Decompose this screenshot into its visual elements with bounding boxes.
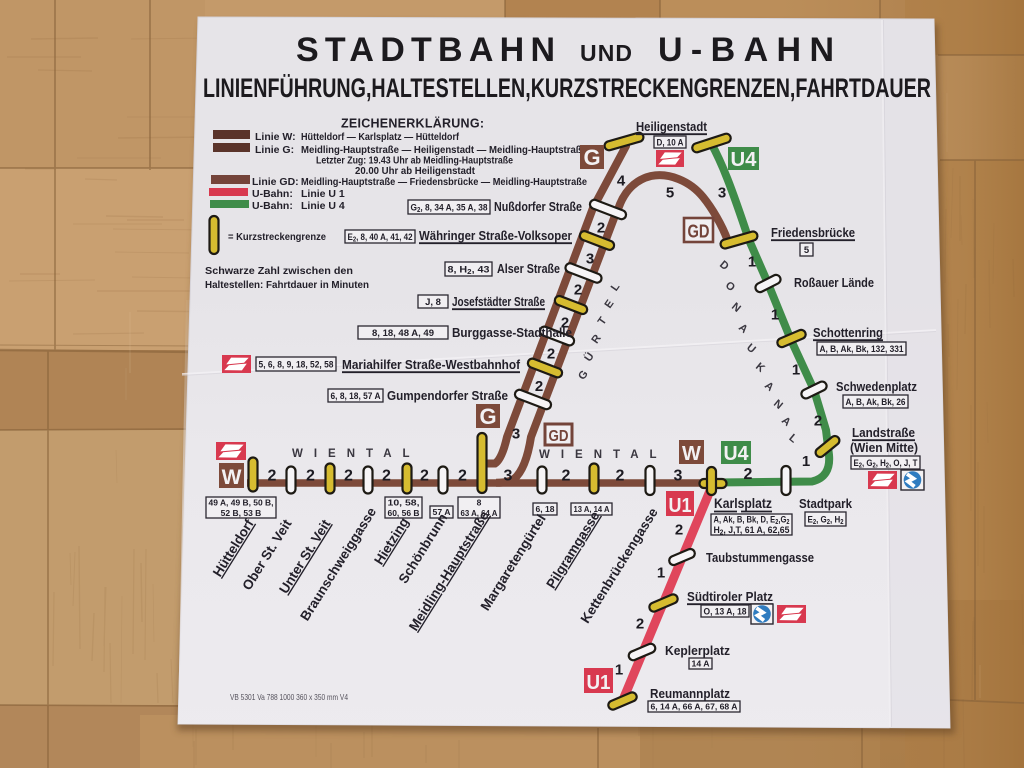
svg-text:2: 2 [535,378,543,395]
svg-text:60, 56 B: 60, 56 B [388,508,420,518]
svg-text:2: 2 [562,468,571,485]
svg-text:(Wien Mitte): (Wien Mitte) [850,440,918,455]
svg-text:2: 2 [675,522,683,539]
svg-text:Burggasse-Stadthalle: Burggasse-Stadthalle [452,325,572,340]
svg-text:A, B, Ak, Bk, 26: A, B, Ak, Bk, 26 [846,397,906,408]
svg-text:3: 3 [512,426,520,443]
svg-text:Meidling-Hauptstraße — Frieden: Meidling-Hauptstraße — Friedensbrücke — … [301,176,587,188]
svg-text:Schottenring: Schottenring [813,325,883,340]
svg-text:2: 2 [344,468,353,485]
svg-text:1: 1 [802,453,810,470]
svg-text:Gumpendorfer Straße: Gumpendorfer Straße [387,388,508,403]
svg-text:Alser Straße: Alser Straße [497,261,560,276]
svg-text:2: 2 [636,616,644,633]
svg-text:Roßauer Lände: Roßauer Lände [794,275,874,290]
svg-text:2: 2 [458,468,467,485]
svg-text:E2, 8, 40 A, 41, 42: E2, 8, 40 A, 41, 42 [348,232,413,244]
svg-text:Linie U 1: Linie U 1 [301,188,345,200]
svg-text:Währinger Straße-Volksoper: Währinger Straße-Volksoper [419,228,572,243]
svg-text:GD: GD [549,428,569,445]
svg-text:49 A, 49 B, 50 B,: 49 A, 49 B, 50 B, [209,497,274,507]
svg-text:O, 13 A, 18: O, 13 A, 18 [704,606,747,617]
svg-text:8: 8 [477,497,482,507]
svg-text:6, 8, 18, 57 A: 6, 8, 18, 57 A [331,391,381,402]
svg-text:2: 2 [382,468,391,485]
svg-text:U-Bahn:: U-Bahn: [252,200,293,212]
svg-text:Keplerplatz: Keplerplatz [665,643,730,658]
svg-text:Heiligenstadt: Heiligenstadt [636,119,708,134]
svg-text:1: 1 [657,565,665,582]
svg-text:1: 1 [792,362,800,379]
svg-text:Mariahilfer Straße-Westbahnhof: Mariahilfer Straße-Westbahnhof [342,357,521,372]
svg-text:A, B, Ak, Bk, 132, 331: A, B, Ak, Bk, 132, 331 [820,344,905,355]
svg-text:Linie W:: Linie W: [255,131,296,143]
svg-text:Linie GD:: Linie GD: [252,176,299,188]
svg-text:ZEICHENERKLÄRUNG:: ZEICHENERKLÄRUNG: [341,116,484,131]
svg-text:U-Bahn:: U-Bahn: [252,188,293,200]
svg-text:VB 5301 Va 788 1000 360 x 3: VB 5301 Va 788 1000 360 x 350 mm V4 [230,693,348,702]
svg-text:2: 2 [306,468,315,485]
svg-text:D, 10 A: D, 10 A [657,137,684,148]
svg-text:GD: GD [688,222,710,242]
svg-text:Linie U 4: Linie U 4 [301,200,345,212]
svg-text:5: 5 [804,245,810,256]
svg-text:3: 3 [674,468,683,485]
svg-text:U1: U1 [669,495,692,517]
svg-text:14 A: 14 A [692,659,710,669]
svg-text:3: 3 [504,468,513,485]
svg-text:Josefstädter Straße: Josefstädter Straße [452,294,545,309]
svg-text:Hütteldorf — Karlsplatz — Hütt: Hütteldorf — Karlsplatz — Hütteldorf [301,131,459,143]
svg-text:Südtiroler Platz: Südtiroler Platz [687,589,773,604]
svg-text:Landstraße: Landstraße [852,425,915,440]
svg-text:Friedensbrücke: Friedensbrücke [771,225,855,240]
svg-text:G: G [583,145,600,170]
svg-text:6, 14 A, 66 A, 67, 68 A: 6, 14 A, 66 A, 67, 68 A [651,702,738,712]
svg-text:LINIENFÜHRUNG,HALTESTELLEN,KUR: LINIENFÜHRUNG,HALTESTELLEN,KURZSTRECKENG… [203,73,931,103]
svg-text:2: 2 [616,468,625,485]
svg-text:1: 1 [771,307,779,324]
svg-text:H2, J,T, 61 A, 62,65: H2, J,T, 61 A, 62,65 [714,525,791,537]
svg-text:Karlsplatz: Karlsplatz [714,495,772,511]
svg-text:5, 6, 8, 9, 18, 52, 58: 5, 6, 8, 9, 18, 52, 58 [259,359,334,370]
svg-text:WIENTAL: WIENTAL [292,448,421,460]
svg-text:Stadtpark: Stadtpark [799,496,853,511]
svg-text:W: W [682,443,701,465]
svg-text:Taubstummengasse: Taubstummengasse [706,550,814,565]
svg-text:G2, 8, 34 A, 35 A, 38: G2, 8, 34 A, 35 A, 38 [411,202,488,214]
svg-text:1: 1 [748,254,756,271]
svg-text:2: 2 [574,282,582,299]
svg-text:G: G [479,404,496,429]
svg-text:2: 2 [547,346,555,363]
svg-text:Linie G:: Linie G: [255,144,294,156]
svg-text:52 B, 53 B: 52 B, 53 B [221,508,262,518]
svg-text:1: 1 [615,662,623,679]
svg-text:STADTBAHN: STADTBAHN [296,31,555,69]
svg-text:WIENTAL: WIENTAL [539,449,668,461]
svg-text:2: 2 [597,220,605,237]
svg-text:W: W [222,466,242,489]
svg-text:U4: U4 [724,443,750,465]
svg-text:U4: U4 [731,149,758,171]
svg-text:2: 2 [744,466,753,483]
svg-text:J, 8: J, 8 [425,297,441,308]
svg-text:2: 2 [420,468,429,485]
svg-text:U1: U1 [587,672,611,694]
svg-text:UND: UND [580,40,632,66]
svg-text:5: 5 [666,185,674,202]
svg-text:6, 18: 6, 18 [536,504,555,514]
svg-text:Haltestellen: Fahrtdauer in Mi: Haltestellen: Fahrtdauer in Minuten [205,279,369,291]
svg-text:10, 58,: 10, 58, [388,497,420,507]
svg-text:2: 2 [268,468,277,485]
svg-text:3: 3 [718,185,726,202]
svg-text:= Kurzstreckengrenze: = Kurzstreckengrenze [228,231,326,243]
svg-text:Schwarze Zahl zwischen den: Schwarze Zahl zwischen den [205,265,353,277]
svg-text:3: 3 [586,251,594,268]
svg-text:2: 2 [814,413,822,430]
svg-text:Reumannplatz: Reumannplatz [650,686,730,701]
svg-text:E2, G2, H2, O, J, T: E2, G2, H2, O, J, T [854,458,918,470]
svg-text:8, 18, 48 A, 49: 8, 18, 48 A, 49 [372,328,434,339]
svg-text:4: 4 [617,173,626,190]
svg-text:Schwedenplatz: Schwedenplatz [836,379,917,394]
svg-text:Nußdorfer Straße: Nußdorfer Straße [494,199,582,214]
